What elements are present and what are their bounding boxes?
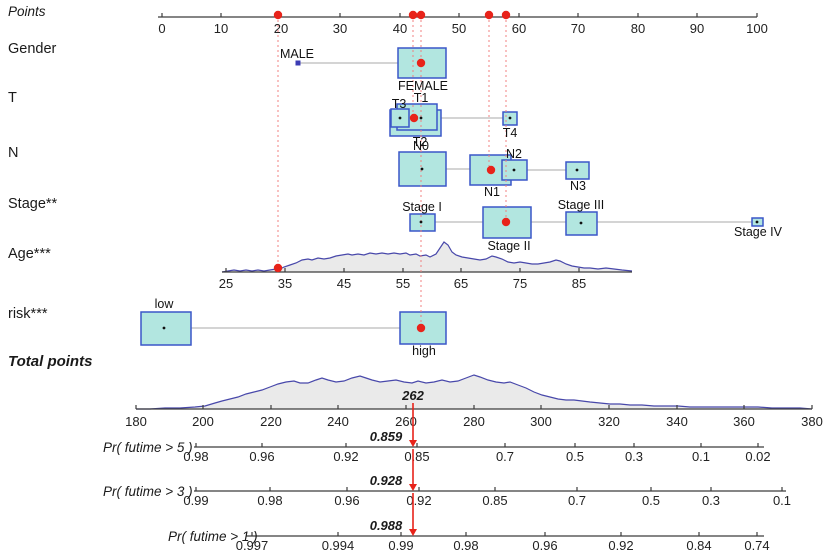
red-marker-dot-3	[485, 11, 493, 19]
pr5-axis-tick-label-6: 0.3	[625, 449, 643, 464]
row-label-age: Age***	[8, 246, 51, 262]
pr3-axis-tick-label-6: 0.5	[642, 493, 660, 508]
points-axis-tick-label-10: 100	[746, 21, 768, 36]
pr3-axis-tick-label-7: 0.3	[702, 493, 720, 508]
pr3-axis-tick-label-5: 0.7	[568, 493, 586, 508]
pr3-axis-tick-label-4: 0.85	[482, 493, 507, 508]
result-arrow-head-1	[409, 484, 417, 491]
row-label-n: N	[8, 145, 18, 161]
box-center-dot-0	[399, 117, 402, 120]
result-arrow-head-0	[409, 440, 417, 447]
row-label-pr1: Pr( futime > 1 )	[168, 529, 258, 544]
box-center-dot-2	[509, 117, 512, 120]
pr5-axis-tick-label-3: 0.85	[404, 449, 429, 464]
box-center-dot-3	[421, 168, 424, 171]
points-axis-tick-label-8: 80	[631, 21, 645, 36]
red-marker-dot-2	[417, 11, 425, 19]
nomogram-svg: 0102030405060708090100253545556575851802…	[0, 0, 825, 552]
row-label-points: Points	[8, 4, 46, 19]
pr1-axis-tick-label-7: 0.74	[744, 538, 769, 552]
total-points-density-fill	[136, 375, 812, 409]
pr1-axis-tick-label-6: 0.84	[686, 538, 711, 552]
label-stage4: Stage IV	[734, 225, 783, 239]
pr1-axis-tick-label-5: 0.92	[608, 538, 633, 552]
label-t3: T3	[392, 97, 407, 111]
label-n2: N2	[506, 147, 522, 161]
red-marker-dot-8	[502, 218, 510, 226]
pr5-axis-tick-label-1: 0.96	[249, 449, 274, 464]
points-axis-tick-label-5: 50	[452, 21, 466, 36]
result-arrow-head-2	[409, 529, 417, 536]
pr1-axis-tick-label-3: 0.98	[453, 538, 478, 552]
points-axis-tick-label-3: 30	[333, 21, 347, 36]
row-label-pr3: Pr( futime > 3 )	[103, 484, 193, 499]
age-axis-tick-label-2: 45	[337, 276, 351, 291]
row-label-t: T	[8, 90, 17, 106]
total-points-axis-tick-label-7: 320	[598, 414, 620, 429]
points-axis-tick-label-0: 0	[158, 21, 165, 36]
pr3-value: 0.928	[370, 473, 403, 488]
total-points-axis-tick-label-3: 240	[327, 414, 349, 429]
box-center-dot-1	[420, 117, 423, 120]
pr1-value: 0.988	[370, 518, 403, 533]
red-marker-dot-4	[502, 11, 510, 19]
red-marker-dot-9	[274, 264, 282, 272]
label-n3: N3	[570, 179, 586, 193]
box-center-dot-4	[513, 169, 516, 172]
box-center-dot-6	[420, 221, 423, 224]
pr3-axis-tick-label-1: 0.98	[257, 493, 282, 508]
box-center-dot-8	[756, 221, 759, 224]
total-points-axis-tick-label-1: 200	[192, 414, 214, 429]
row-label-risk: risk***	[8, 306, 48, 322]
age-axis-tick-label-3: 55	[396, 276, 410, 291]
age-axis-tick-label-6: 85	[572, 276, 586, 291]
total-points-axis-tick-label-2: 220	[260, 414, 282, 429]
row-label-pr5: Pr( futime > 5 )	[103, 440, 193, 455]
nomogram-chart: 0102030405060708090100253545556575851802…	[0, 0, 825, 552]
age-axis-tick-label-4: 65	[454, 276, 468, 291]
pr3-axis-tick-label-8: 0.1	[773, 493, 791, 508]
points-axis-tick-label-6: 60	[512, 21, 526, 36]
label-high: high	[412, 344, 436, 358]
label-t1: T1	[414, 91, 429, 105]
row-label-stage: Stage**	[8, 196, 58, 212]
total-points-axis-tick-label-5: 280	[463, 414, 485, 429]
male-square-marker-0	[296, 61, 301, 66]
pr3-axis-tick-label-3: 0.92	[406, 493, 431, 508]
pr5-axis-tick-label-5: 0.5	[566, 449, 584, 464]
age-axis-tick-label-5: 75	[513, 276, 527, 291]
box-center-dot-7	[580, 222, 583, 225]
age-axis-tick-label-1: 35	[278, 276, 292, 291]
red-marker-dot-6	[410, 114, 418, 122]
box-center-dot-9	[163, 327, 166, 330]
row-label-total-points: Total points	[8, 353, 92, 370]
label-male: MALE	[280, 47, 314, 61]
pr1-axis-tick-label-4: 0.96	[532, 538, 557, 552]
box-center-dot-5	[576, 169, 579, 172]
red-marker-dot-0	[274, 11, 282, 19]
pr5-axis-tick-label-7: 0.1	[692, 449, 710, 464]
stage1-box	[410, 214, 435, 231]
total-points-axis-tick-label-0: 180	[125, 414, 147, 429]
pr3-axis-tick-label-2: 0.96	[334, 493, 359, 508]
label-t4: T4	[503, 126, 518, 140]
points-axis-tick-label-1: 10	[214, 21, 228, 36]
row-label-gender: Gender	[8, 41, 57, 57]
pr5-axis-tick-label-2: 0.92	[333, 449, 358, 464]
total-points-axis-tick-label-8: 340	[666, 414, 688, 429]
label-n1: N1	[484, 185, 500, 199]
age-axis-tick-label-0: 25	[219, 276, 233, 291]
points-axis-tick-label-2: 20	[274, 21, 288, 36]
label-stage2: Stage II	[487, 239, 530, 253]
total-points-axis-tick-label-10: 380	[801, 414, 823, 429]
total-points-value: 262	[401, 388, 424, 403]
label-stage1: Stage I	[402, 200, 442, 214]
pr1-axis-tick-label-2: 0.99	[388, 538, 413, 552]
risk-low-box	[141, 312, 191, 345]
red-marker-dot-10	[417, 324, 425, 332]
red-marker-dot-7	[487, 166, 495, 174]
total-points-axis-tick-label-9: 360	[733, 414, 755, 429]
pr5-value: 0.859	[370, 429, 403, 444]
pr5-axis-tick-label-4: 0.7	[496, 449, 514, 464]
label-n0: N0	[413, 139, 429, 153]
label-stage3: Stage III	[558, 198, 605, 212]
pr5-axis-tick-label-8: 0.02	[745, 449, 770, 464]
red-marker-dot-1	[409, 11, 417, 19]
red-marker-dot-5	[417, 59, 425, 67]
total-points-axis-tick-label-6: 300	[530, 414, 552, 429]
pr1-axis-tick-label-1: 0.994	[322, 538, 355, 552]
points-axis-tick-label-7: 70	[571, 21, 585, 36]
points-axis-tick-label-4: 40	[393, 21, 407, 36]
label-low: low	[155, 297, 175, 311]
points-axis-tick-label-9: 90	[690, 21, 704, 36]
